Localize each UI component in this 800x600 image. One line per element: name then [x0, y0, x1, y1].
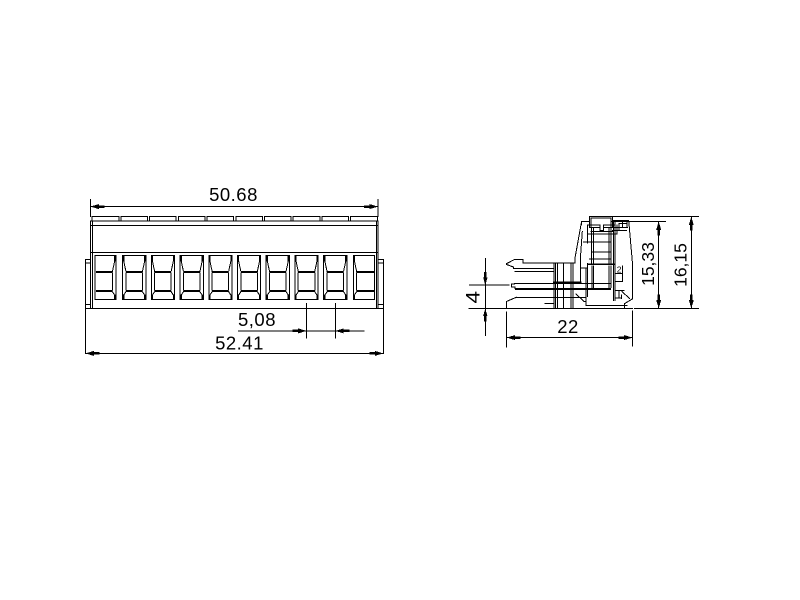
svg-text:16,15: 16,15 [671, 243, 691, 287]
svg-text:2: 2 [617, 265, 622, 275]
svg-text:52.41: 52.41 [215, 333, 264, 354]
svg-text:22: 22 [557, 316, 579, 337]
svg-text:4: 4 [464, 290, 485, 303]
svg-text:50.68: 50.68 [209, 184, 258, 205]
svg-text:15,33: 15,33 [638, 242, 658, 286]
svg-text:5,08: 5,08 [238, 309, 276, 330]
